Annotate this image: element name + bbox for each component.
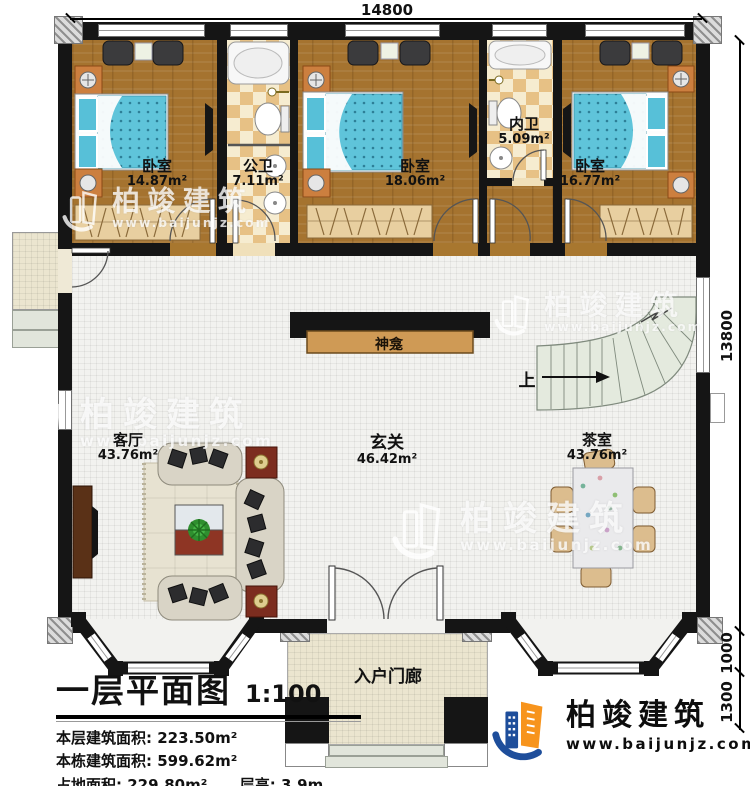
side-porch-step [12, 310, 63, 330]
stat-building-area: 本栋建筑面积: 599.62m² [56, 750, 361, 773]
room-label-public-bath: 公卫 7.11m² [213, 158, 303, 189]
room-label-bedroom1: 卧室 14.87m² [112, 158, 202, 189]
wall-bottom-segment [443, 619, 510, 633]
window-bedroom1 [98, 24, 205, 37]
room-label-tea-room: 茶室 43.76m² [552, 432, 642, 463]
company-name: 柏竣建筑 [566, 701, 750, 731]
room-label-living-room: 客厅 43.76m² [83, 432, 173, 463]
company-logo-icon [486, 692, 556, 762]
side-porch-step [12, 330, 63, 348]
wall-interior [58, 243, 710, 256]
porch-column-base [444, 743, 488, 767]
exterior-unit [710, 393, 725, 423]
stat-floor-area: 本层建筑面积: 223.50m² [56, 727, 361, 750]
title-block: 一层平面图 1:100 本层建筑面积: 223.50m² 本栋建筑面积: 599… [56, 664, 361, 786]
title-underline-thin [56, 721, 361, 722]
side-porch-floor [12, 232, 63, 310]
door-gap-inner-bath [512, 178, 544, 186]
room-label-inner-bath: 内卫 5.09m² [479, 116, 569, 147]
stat-land-area-height: 占地面积: 229.80m² 层高: 3.9m [56, 774, 361, 786]
title-underline [56, 715, 361, 719]
plan-title: 一层平面图 [56, 664, 231, 712]
corner-pier-bl [47, 617, 73, 644]
shrine-label: 神龛 [344, 334, 434, 354]
door-gap-side-porch [58, 249, 72, 293]
window-bedroom2 [345, 24, 440, 37]
wall-bedroom1-bath [217, 40, 227, 243]
porch-column [444, 697, 488, 743]
company-brand: 柏竣建筑 www.baijunjz.com [486, 692, 750, 762]
window-bedroom3 [585, 24, 685, 37]
corner-pier-tl [54, 16, 83, 44]
plan-scale: 1:100 [245, 680, 321, 708]
room-label-bedroom2: 卧室 18.06m² [370, 158, 460, 189]
window-inner-bath [492, 24, 547, 37]
floor-plan-page: 柏竣建筑 www.baijunjz.com 柏竣建筑 www.baijunjz.… [0, 0, 750, 786]
room-label-bedroom3: 卧室 16.77m² [545, 158, 635, 189]
door-gap-bedroom3 [565, 243, 607, 256]
wall-bath-bedroom2 [290, 40, 298, 243]
wall-bottom-segment [255, 619, 329, 633]
company-website: www.baijunjz.com [566, 735, 750, 753]
dimension-right-height: 13800 [718, 301, 736, 371]
window-public-bath [230, 24, 288, 37]
door-gap-bedroom1 [170, 243, 216, 256]
door-gap-vestibule [490, 243, 530, 256]
public-bath-floor [227, 40, 290, 243]
window-stair-hall [696, 277, 710, 373]
wall-left [58, 22, 72, 633]
corner-pier-tr [693, 16, 722, 44]
dimension-top-width: 14800 [350, 1, 424, 19]
dimension-right-lower1: 1000 [718, 627, 736, 679]
door-gap-public-bath [233, 243, 275, 256]
room-label-foyer: 玄关 46.42m² [342, 434, 432, 467]
entrance-opening [327, 619, 445, 633]
stairs-up-label: 上 [514, 366, 540, 391]
door-gap-bedroom2 [433, 243, 478, 256]
dimension-line-right [739, 40, 741, 730]
window-living [58, 390, 72, 430]
bedroom-zone-floor [72, 40, 696, 243]
inner-bath-floor [487, 40, 553, 178]
